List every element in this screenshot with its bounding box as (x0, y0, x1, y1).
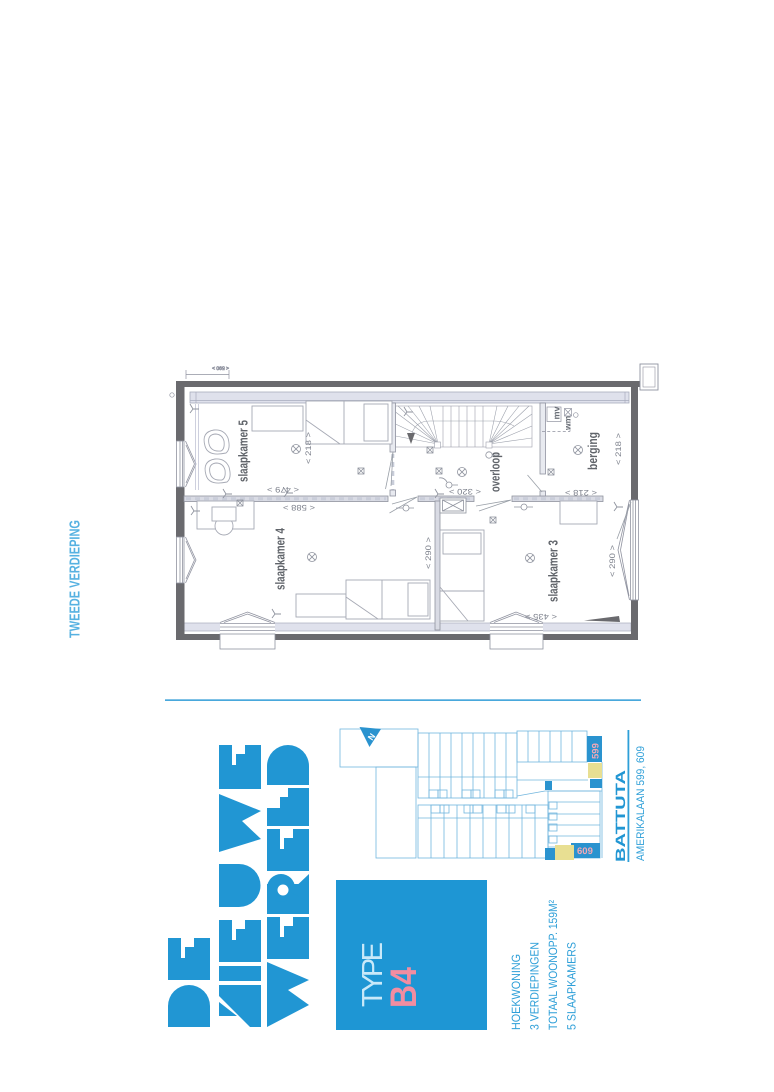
svg-text:599: 599 (591, 743, 602, 759)
svg-text:3 VERDIEPINGEN: 3 VERDIEPINGEN (528, 942, 542, 1030)
svg-text:609: 609 (577, 846, 593, 857)
svg-text:< 588 >: < 588 > (283, 503, 315, 512)
svg-text:wm: wm (563, 415, 573, 431)
svg-text:slaapkamer 4: slaapkamer 4 (273, 527, 288, 590)
svg-text:< 290 >: < 290 > (608, 545, 617, 577)
svg-text:TOTAAL WOONOPP. 159M²: TOTAAL WOONOPP. 159M² (546, 900, 560, 1030)
svg-text:slaapkamer 3: slaapkamer 3 (546, 540, 561, 602)
svg-text:slaapkamer 5: slaapkamer 5 (236, 420, 251, 482)
svg-text:< 218 >: < 218 > (565, 488, 597, 497)
svg-text:TWEEDE VERDIEPING: TWEEDE VERDIEPING (68, 520, 84, 638)
svg-text:berging: berging (585, 432, 600, 470)
svg-text:5 SLAAPKAMERS: 5 SLAAPKAMERS (565, 942, 579, 1030)
svg-text:B4: B4 (383, 967, 424, 1008)
svg-text:< 218 >: < 218 > (304, 432, 313, 464)
svg-text:< 218 >: < 218 > (614, 433, 623, 465)
svg-text:< 479 >: < 479 > (267, 485, 299, 494)
svg-text:< 320 >: < 320 > (449, 487, 481, 496)
svg-text:< 590 >: < 590 > (212, 365, 229, 371)
svg-text:AMERIKALAAN 599, 609: AMERIKALAAN 599, 609 (635, 746, 647, 861)
svg-text:HOEKWONING: HOEKWONING (509, 954, 523, 1030)
svg-text:< 435 >: < 435 > (525, 612, 557, 621)
svg-text:BATTUTA: BATTUTA (613, 770, 628, 862)
svg-text:mv: mv (552, 406, 562, 419)
svg-text:< 290 >: < 290 > (424, 537, 433, 569)
